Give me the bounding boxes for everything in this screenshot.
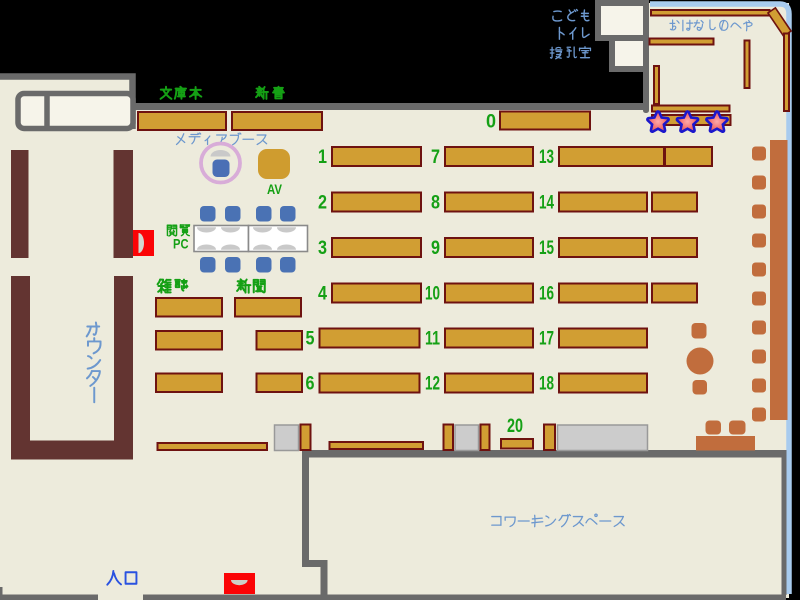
svg-text:PC: PC bbox=[173, 236, 189, 252]
svg-text:17: 17 bbox=[539, 329, 554, 350]
svg-text:0: 0 bbox=[486, 112, 496, 133]
svg-text:15: 15 bbox=[539, 238, 554, 259]
svg-text:11: 11 bbox=[425, 329, 440, 350]
svg-text:1: 1 bbox=[318, 147, 327, 168]
svg-text:6: 6 bbox=[306, 374, 315, 395]
svg-text:10: 10 bbox=[425, 284, 440, 305]
svg-text:2: 2 bbox=[318, 193, 327, 214]
svg-text:5: 5 bbox=[306, 329, 315, 350]
svg-text:20: 20 bbox=[507, 416, 523, 437]
svg-text:12: 12 bbox=[425, 374, 440, 395]
svg-text:13: 13 bbox=[539, 147, 554, 168]
svg-text:9: 9 bbox=[431, 238, 440, 259]
svg-text:4: 4 bbox=[318, 284, 327, 305]
svg-text:AV: AV bbox=[267, 181, 283, 197]
svg-text:14: 14 bbox=[539, 193, 554, 214]
svg-text:7: 7 bbox=[431, 147, 440, 168]
svg-text:18: 18 bbox=[539, 374, 554, 395]
svg-text:16: 16 bbox=[539, 284, 554, 305]
svg-text:8: 8 bbox=[431, 193, 440, 214]
svg-text:3: 3 bbox=[318, 238, 327, 259]
